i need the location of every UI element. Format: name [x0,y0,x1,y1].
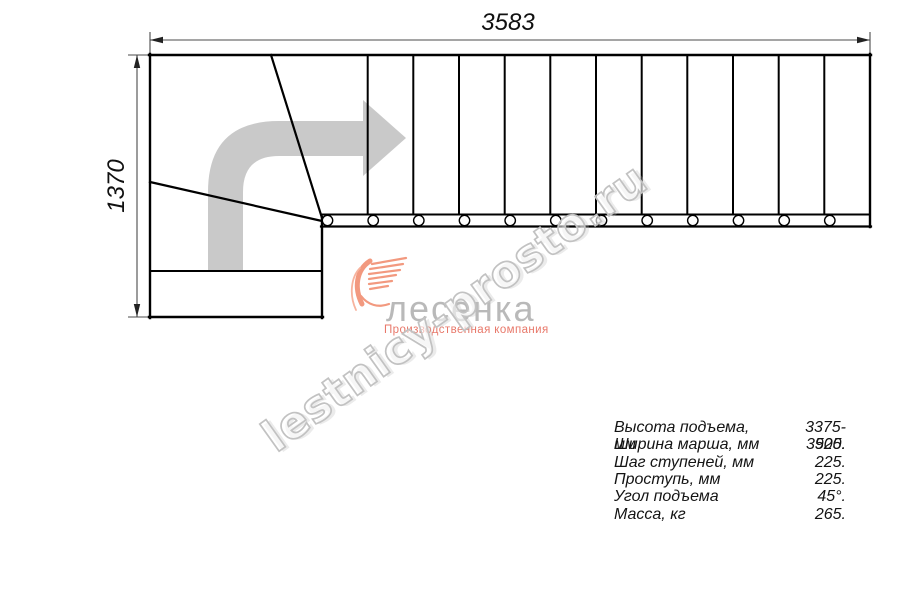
dimension-height-label: 1370 [103,159,131,212]
step-circle [551,215,561,225]
step-circle [825,215,835,225]
step-circles [322,215,835,225]
step-circle [596,215,606,225]
spec-row: Высота подъема, мм 3375-3525. [614,419,846,436]
dimension-width-label: 3583 [481,9,534,37]
step-circle [368,215,378,225]
step-circle [688,215,698,225]
spec-label: Проступь, мм [614,471,720,488]
logo-tagline: Производственная компания [384,324,549,336]
spec-row: Угол подъема 45°. [614,488,846,505]
step-circle [322,215,332,225]
company-logo: лесенка Производственная компания [350,255,570,345]
spec-label: Ширина марша, мм [614,436,759,453]
spec-table: Высота подъема, мм 3375-3525. Ширина мар… [614,419,846,523]
spec-row: Масса, кг 265. [614,506,846,523]
step-circle [642,215,652,225]
dim-arrow-down [134,304,140,317]
spec-value: 900. [815,436,846,453]
spec-value: 265. [815,506,846,523]
swoosh-stripes [369,258,406,289]
spec-value: 225. [815,471,846,488]
step-circle [459,215,469,225]
tread-lines [368,55,825,214]
swoosh-tail [361,296,389,306]
step-circle [505,215,515,225]
spec-value: 225. [815,454,846,471]
dim-arrow-up [134,55,140,68]
spec-row: Шаг ступеней, мм 225. [614,454,846,471]
dim-arrow-right [857,37,870,43]
spec-label: Угол подъема [614,488,719,505]
dimension-left [128,55,149,317]
dim-arrow-left [150,37,163,43]
spec-label: Шаг ступеней, мм [614,454,754,471]
stair-drawing-page: 3583 1370 лесенка Производственная компа… [0,0,900,600]
direction-arrow [208,100,406,272]
step-circle [779,215,789,225]
spec-label: Масса, кг [614,506,686,523]
spec-value: 45°. [817,488,846,505]
spec-row: Проступь, мм 225. [614,471,846,488]
spec-value: 3375-3525. [769,419,846,436]
step-circle [414,215,424,225]
step-circle [733,215,743,225]
spec-label: Высота подъема, мм [614,419,769,436]
